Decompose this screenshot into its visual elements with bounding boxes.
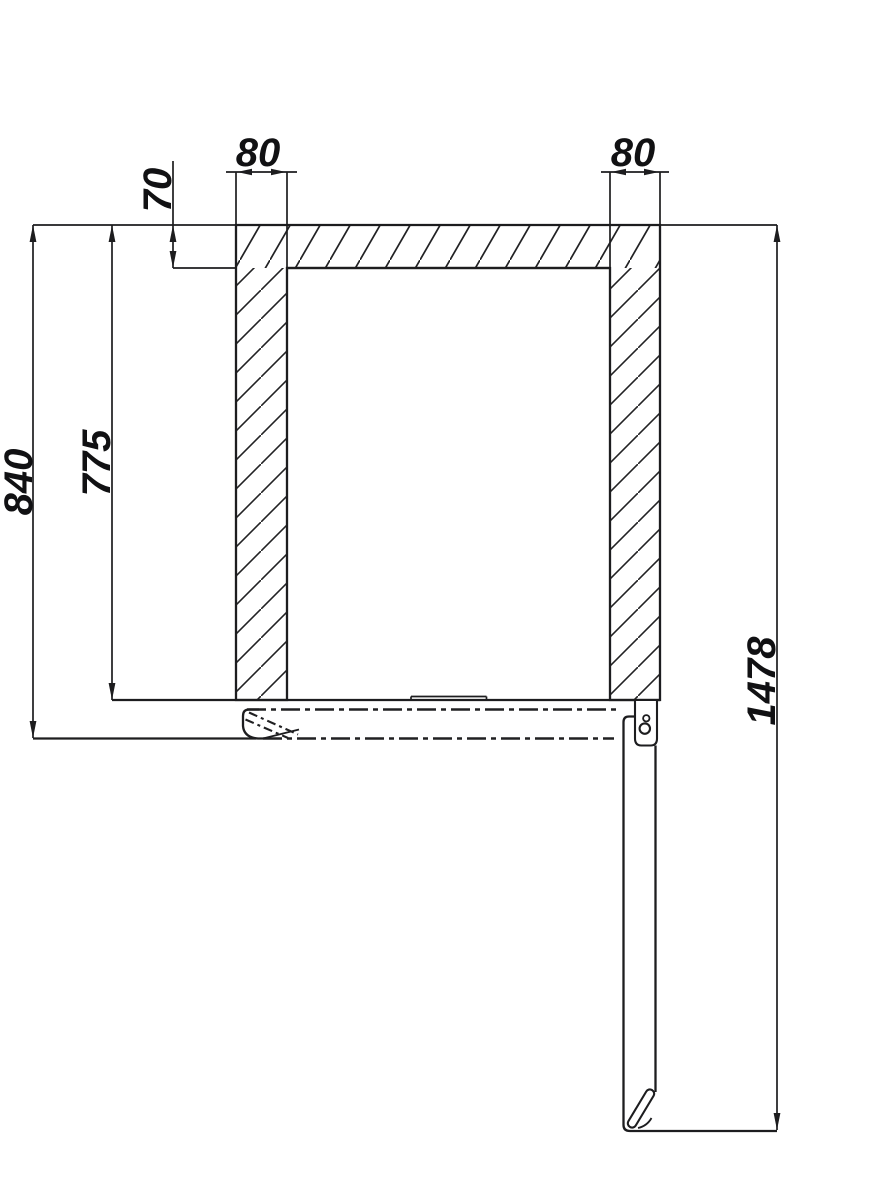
- edge-centerline-2: [246, 720, 289, 739]
- leg-left-outline: [624, 717, 778, 1132]
- dim-label-775: 775: [75, 429, 119, 496]
- arrow-775-bottom: [109, 683, 116, 700]
- dimension-lines: [30, 161, 781, 1130]
- edge-centerline-1: [249, 713, 298, 735]
- leg-foot: [626, 1088, 655, 1129]
- dim-label-840: 840: [0, 449, 41, 516]
- technical-drawing-canvas: 80 80 70 775 840 1478: [0, 0, 875, 1200]
- frame-section: [236, 225, 660, 700]
- arrow-1478-bottom: [774, 1113, 781, 1130]
- folding-leg: [624, 700, 778, 1131]
- dim-label-80-left: 80: [236, 131, 281, 175]
- arrow-775-top: [109, 225, 116, 242]
- tabletop: [33, 697, 660, 739]
- left-column-hatch: [236, 268, 287, 700]
- dim-label-70: 70: [136, 168, 180, 213]
- section-drawing: 80 80 70 775 840 1478: [0, 0, 875, 1200]
- hinge-screw-bottom: [640, 723, 650, 733]
- arrow-70-top: [170, 225, 177, 242]
- hinge-screw-top: [643, 715, 649, 721]
- dim-label-1478: 1478: [740, 636, 784, 726]
- arrow-840-top: [30, 225, 37, 242]
- top-bar-hatch: [236, 225, 660, 268]
- right-column-hatch: [610, 268, 661, 700]
- arrow-70-bottom: [170, 251, 177, 268]
- dimension-labels: 80 80 70 775 840 1478: [0, 131, 784, 725]
- arrow-1478-top: [774, 225, 781, 242]
- tabletop-edge-chamfer: [263, 730, 299, 739]
- dim-label-80-right: 80: [611, 131, 656, 175]
- arrow-840-bottom: [30, 721, 37, 738]
- frame-outline: [236, 225, 660, 700]
